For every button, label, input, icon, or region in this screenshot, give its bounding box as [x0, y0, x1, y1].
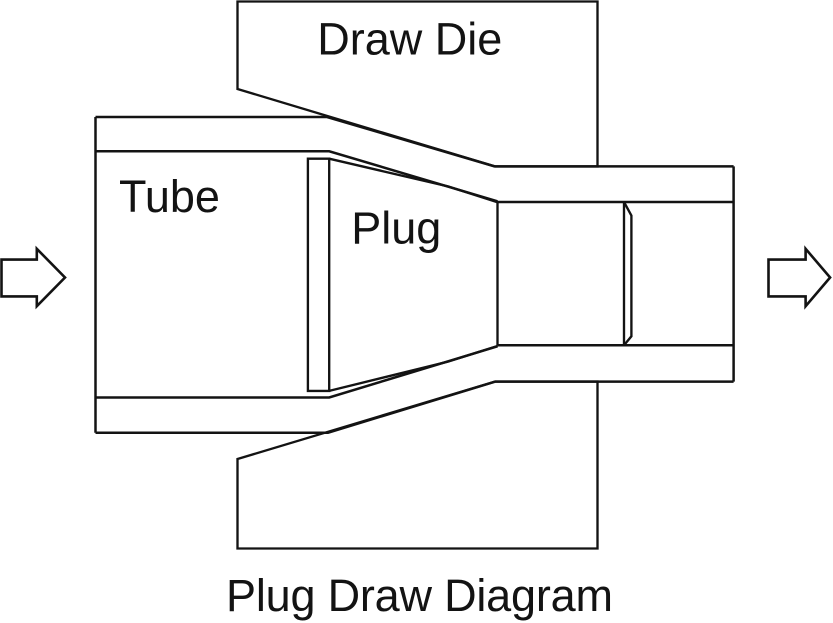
- svg-text:Plug: Plug: [351, 203, 441, 254]
- svg-text:Draw Die: Draw Die: [317, 13, 502, 64]
- svg-text:Tube: Tube: [119, 171, 220, 222]
- svg-text:Plug Draw Diagram: Plug Draw Diagram: [226, 570, 613, 621]
